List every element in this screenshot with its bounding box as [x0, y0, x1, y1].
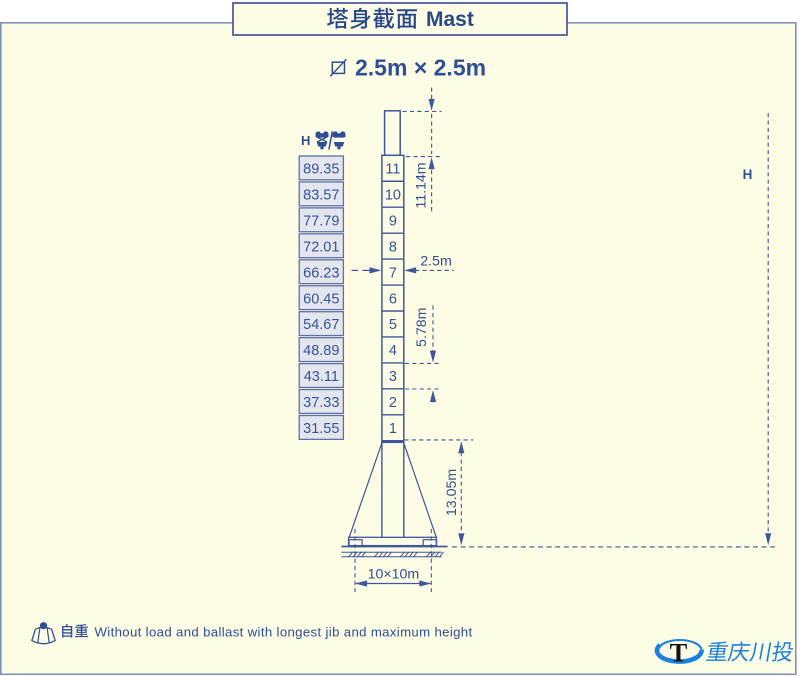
svg-text:9: 9	[389, 213, 397, 229]
svg-text:Without load and ballast with: Without load and ballast with longest ji…	[95, 624, 473, 639]
svg-text:2: 2	[389, 395, 397, 411]
svg-text:1: 1	[389, 421, 397, 437]
svg-text:3: 3	[389, 369, 397, 385]
svg-text:89.35: 89.35	[303, 162, 339, 178]
svg-text:7: 7	[389, 265, 397, 281]
svg-text:31.55: 31.55	[303, 421, 339, 437]
svg-text:4: 4	[389, 343, 397, 359]
svg-text:83.57: 83.57	[303, 187, 339, 203]
svg-text:2.5m × 2.5m: 2.5m × 2.5m	[355, 54, 486, 80]
svg-text:72.01: 72.01	[303, 239, 339, 255]
svg-text:H: H	[743, 167, 753, 182]
svg-text:54.67: 54.67	[303, 317, 339, 333]
svg-text:8: 8	[389, 239, 397, 255]
svg-text:T: T	[670, 638, 688, 668]
svg-text:11: 11	[385, 162, 400, 178]
svg-text:37.33: 37.33	[303, 395, 339, 411]
svg-text:10×10m: 10×10m	[368, 566, 420, 582]
svg-text:6: 6	[389, 291, 397, 307]
svg-text:13.05m: 13.05m	[444, 469, 460, 516]
svg-text:Mast: Mast	[426, 8, 474, 31]
svg-text:10: 10	[385, 187, 401, 203]
svg-text:48.89: 48.89	[303, 343, 339, 359]
svg-text:5: 5	[389, 317, 397, 333]
svg-text:60.45: 60.45	[303, 291, 339, 307]
svg-text:2.5m: 2.5m	[420, 254, 452, 270]
svg-text:66.23: 66.23	[303, 265, 339, 281]
svg-text:77.79: 77.79	[303, 213, 339, 229]
svg-text:43.11: 43.11	[304, 369, 339, 385]
svg-text:5.78m: 5.78m	[414, 308, 430, 347]
svg-text:11.14m: 11.14m	[414, 162, 430, 208]
svg-text:H: H	[301, 133, 310, 148]
